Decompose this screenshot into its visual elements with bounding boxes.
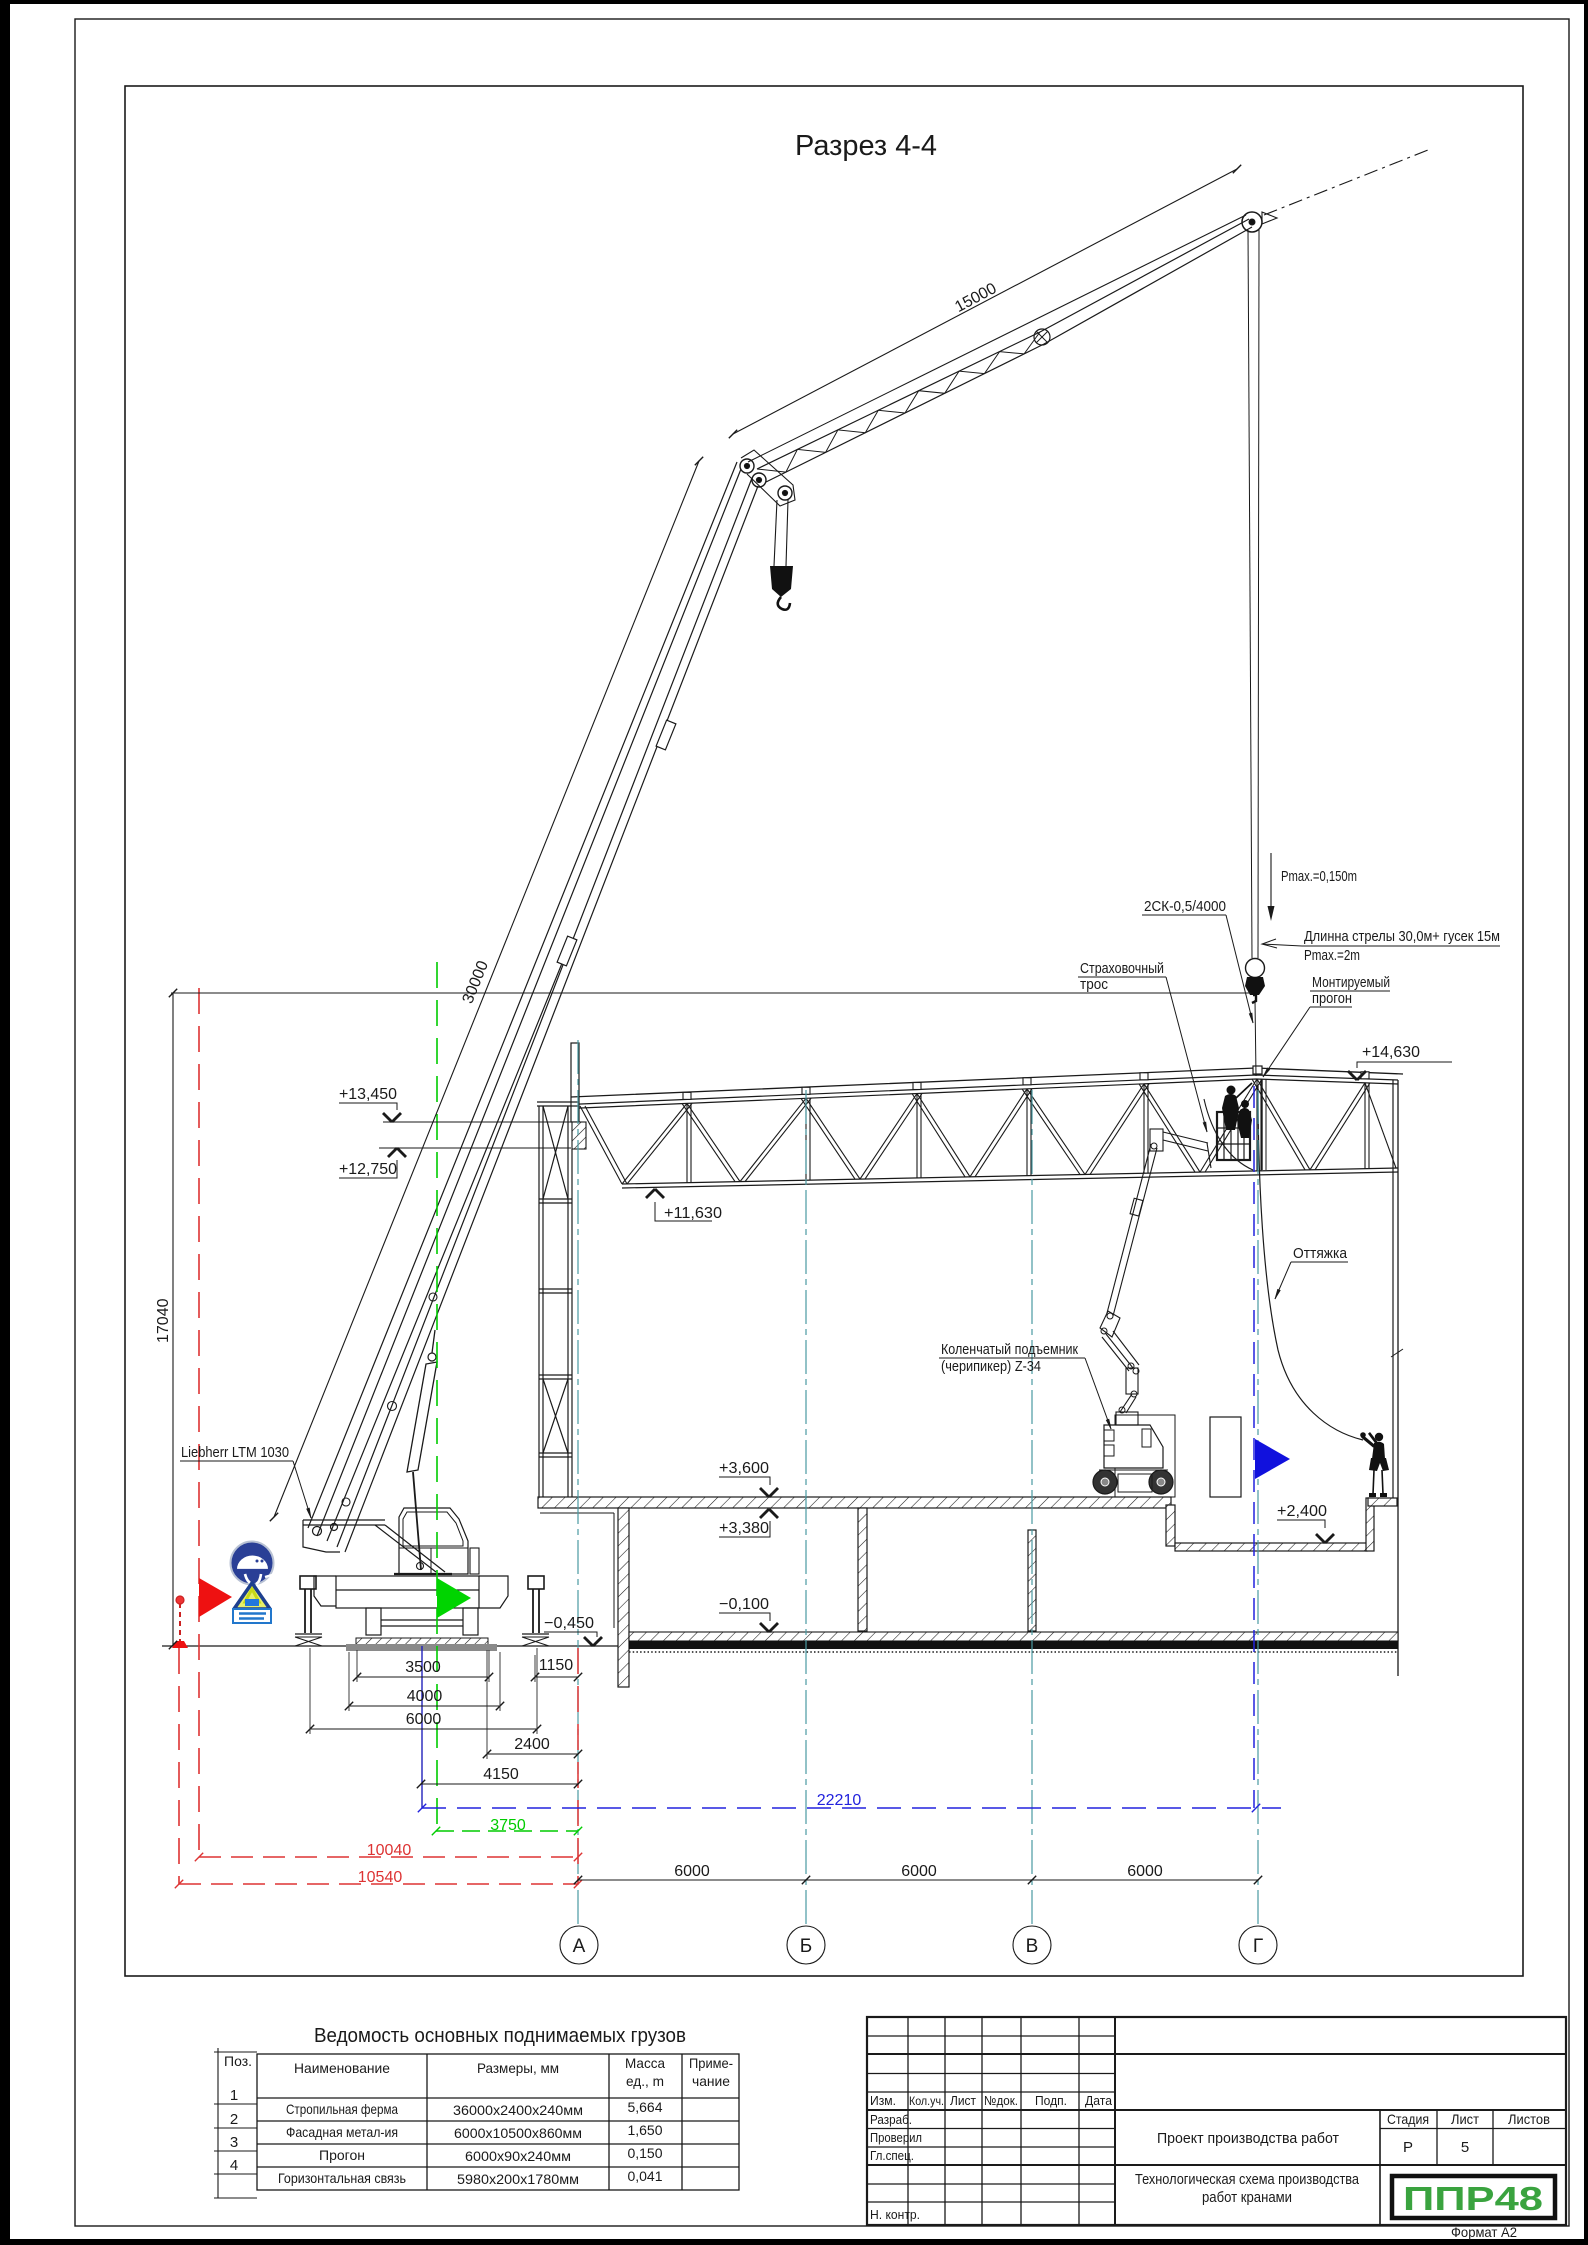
svg-text:5,664: 5,664 bbox=[627, 2099, 662, 2115]
svg-text:Формат А2: Формат А2 bbox=[1451, 2224, 1517, 2240]
svg-text:4000: 4000 bbox=[407, 1688, 443, 1705]
svg-text:Технологическая схема производ: Технологическая схема производства bbox=[1135, 2171, 1360, 2188]
svg-text:Прогон: Прогон bbox=[319, 2147, 365, 2163]
svg-text:Б: Б bbox=[800, 1936, 812, 1957]
svg-text:Наименование: Наименование bbox=[294, 2060, 390, 2076]
svg-text:2400: 2400 bbox=[514, 1736, 550, 1753]
svg-text:Pmax.=0,150m: Pmax.=0,150m bbox=[1281, 868, 1357, 885]
svg-text:(черипикер) Z-34: (черипикер) Z-34 bbox=[941, 1358, 1041, 1375]
svg-text:Liebherr LTM 1030: Liebherr LTM 1030 bbox=[181, 1444, 289, 1461]
svg-text:трос: трос bbox=[1080, 976, 1108, 993]
svg-text:1: 1 bbox=[230, 2087, 238, 2104]
svg-text:ППР48: ППР48 bbox=[1403, 2180, 1543, 2217]
svg-text:Стропильная ферма: Стропильная ферма bbox=[286, 2101, 398, 2117]
svg-text:Страховочный: Страховочный bbox=[1080, 960, 1164, 977]
svg-text:17040: 17040 bbox=[155, 1298, 172, 1343]
svg-text:Коленчатый подъемник: Коленчатый подъемник bbox=[941, 1341, 1078, 1358]
svg-text:4: 4 bbox=[230, 2157, 238, 2174]
svg-text:10540: 10540 bbox=[358, 1869, 403, 1886]
svg-text:Разрез 4-4: Разрез 4-4 bbox=[795, 130, 937, 162]
svg-text:Листов: Листов bbox=[1508, 2111, 1550, 2127]
svg-text:1,650: 1,650 bbox=[627, 2122, 662, 2138]
svg-text:6000х90х240мм: 6000х90х240мм bbox=[465, 2148, 571, 2164]
svg-text:Поз.: Поз. bbox=[224, 2053, 252, 2069]
svg-text:5980х200х1780мм: 5980х200х1780мм bbox=[457, 2171, 579, 2187]
svg-text:3: 3 bbox=[230, 2134, 238, 2151]
svg-text:1150: 1150 bbox=[539, 1657, 574, 1674]
svg-text:Pmax.=2m: Pmax.=2m bbox=[1304, 947, 1360, 964]
svg-text:№док.: №док. bbox=[984, 2093, 1018, 2108]
svg-text:Оттяжка: Оттяжка bbox=[1293, 1245, 1348, 1262]
svg-text:Размеры, мм: Размеры, мм bbox=[477, 2060, 559, 2076]
svg-text:+14,630: +14,630 bbox=[1362, 1044, 1420, 1061]
svg-text:Приме-: Приме- bbox=[689, 2055, 733, 2071]
svg-text:Фасадная метал-ия: Фасадная метал-ия bbox=[286, 2124, 398, 2140]
svg-text:Кол.уч.: Кол.уч. bbox=[909, 2094, 944, 2108]
svg-text:6000х10500х860мм: 6000х10500х860мм bbox=[454, 2125, 582, 2141]
svg-text:Проект производства работ: Проект производства работ bbox=[1157, 2130, 1339, 2147]
svg-text:10040: 10040 bbox=[367, 1842, 412, 1859]
svg-text:чание: чание bbox=[692, 2073, 730, 2089]
svg-text:Масса: Масса bbox=[625, 2055, 665, 2071]
svg-text:6000: 6000 bbox=[406, 1711, 442, 1728]
svg-text:Дата: Дата bbox=[1085, 2093, 1113, 2108]
svg-text:3500: 3500 bbox=[405, 1659, 441, 1676]
svg-text:+13,450: +13,450 bbox=[339, 1086, 397, 1103]
svg-text:Подп.: Подп. bbox=[1035, 2093, 1067, 2108]
svg-text:3750: 3750 bbox=[490, 1817, 526, 1834]
svg-text:Лист: Лист bbox=[950, 2093, 976, 2108]
svg-text:Изм.: Изм. bbox=[870, 2093, 896, 2108]
svg-text:22210: 22210 bbox=[817, 1792, 862, 1809]
svg-text:+3,600: +3,600 bbox=[719, 1460, 769, 1477]
svg-text:Ведомость основных поднимаемых: Ведомость основных поднимаемых грузов bbox=[314, 2025, 686, 2047]
svg-text:+11,630: +11,630 bbox=[664, 1205, 722, 1222]
svg-text:А: А bbox=[573, 1936, 586, 1957]
svg-text:+3,380: +3,380 bbox=[719, 1520, 769, 1537]
svg-text:5: 5 bbox=[1461, 2139, 1469, 2156]
svg-text:прогон: прогон bbox=[1312, 990, 1352, 1007]
svg-text:Лист: Лист bbox=[1451, 2111, 1480, 2127]
svg-text:Монтируемый: Монтируемый bbox=[1312, 974, 1390, 991]
svg-text:6000: 6000 bbox=[674, 1863, 710, 1880]
svg-text:Н. контр.: Н. контр. bbox=[870, 2207, 920, 2222]
svg-text:Длинна стрелы 30,0м+ гусек 15м: Длинна стрелы 30,0м+ гусек 15м bbox=[1304, 928, 1500, 945]
svg-text:6000: 6000 bbox=[901, 1863, 937, 1880]
svg-text:Стадия: Стадия bbox=[1387, 2111, 1429, 2127]
svg-text:Проверил: Проверил bbox=[870, 2130, 922, 2145]
svg-text:+2,400: +2,400 bbox=[1277, 1503, 1327, 1520]
svg-text:2: 2 bbox=[230, 2111, 238, 2128]
svg-text:+12,750: +12,750 bbox=[339, 1161, 397, 1178]
svg-text:4150: 4150 bbox=[483, 1766, 519, 1783]
svg-text:2СК-0,5/4000: 2СК-0,5/4000 bbox=[1144, 898, 1226, 915]
svg-text:0,041: 0,041 bbox=[627, 2168, 662, 2184]
svg-text:Г: Г bbox=[1253, 1936, 1263, 1957]
svg-text:6000: 6000 bbox=[1127, 1863, 1163, 1880]
svg-text:ед., m: ед., m bbox=[626, 2073, 664, 2089]
svg-text:Р: Р bbox=[1403, 2139, 1413, 2156]
svg-text:0,150: 0,150 bbox=[627, 2145, 662, 2161]
svg-text:Гл.спец.: Гл.спец. bbox=[870, 2148, 914, 2163]
svg-text:работ кранами: работ кранами bbox=[1202, 2189, 1292, 2206]
svg-text:−0,100: −0,100 bbox=[719, 1596, 769, 1613]
svg-text:−0,450: −0,450 bbox=[544, 1615, 594, 1632]
svg-text:Горизонтальная связь: Горизонтальная связь bbox=[278, 2170, 406, 2186]
svg-text:36000х2400х240мм: 36000х2400х240мм bbox=[453, 2102, 583, 2118]
svg-text:В: В bbox=[1026, 1936, 1039, 1957]
svg-text:Разраб.: Разраб. bbox=[870, 2112, 912, 2127]
